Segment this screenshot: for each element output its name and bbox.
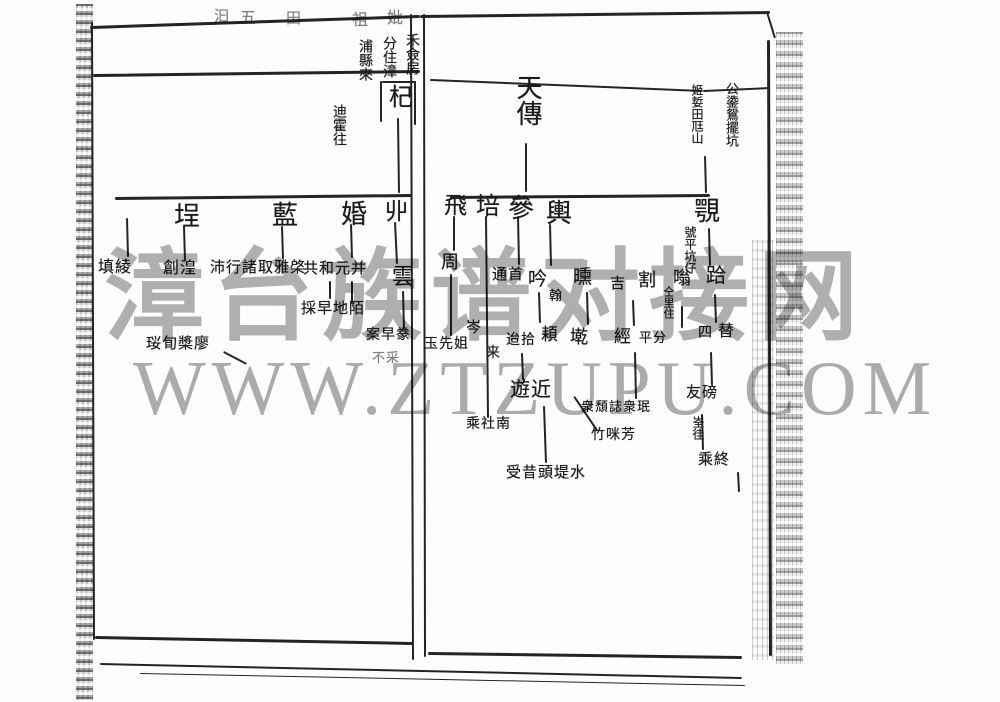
tree-node: 沛行諸取雅棨	[210, 261, 306, 277]
tree-node: 經	[614, 328, 632, 346]
tree-line	[682, 306, 684, 328]
tree-line	[330, 281, 332, 299]
tree-line	[350, 224, 353, 258]
tree-node: 輿	[546, 200, 573, 227]
tree-node: 禾僉房	[404, 33, 418, 75]
tree-node: 受昔頭堤水	[506, 466, 586, 482]
tree-line	[223, 351, 247, 365]
tree-node: 曛	[573, 268, 593, 288]
page-border-line	[430, 79, 703, 92]
page-border-line	[382, 81, 416, 83]
tree-node: 採早地陌	[301, 302, 365, 318]
tree-node: 創湟	[163, 261, 197, 278]
tree-node: 迪霍往	[331, 104, 345, 146]
tree-node: 吟	[528, 270, 548, 290]
tree-node: 浦縣來	[357, 39, 371, 81]
tree-node: 埕	[174, 203, 201, 230]
tree-node: 案早豢	[366, 329, 411, 344]
page-border-line	[91, 22, 95, 640]
tree-node: 丱	[385, 200, 409, 224]
tree-line	[544, 406, 547, 463]
tree-line	[709, 228, 711, 266]
tree-line	[539, 292, 541, 323]
tree-node: 祖	[352, 13, 369, 30]
tree-node: 頛	[541, 326, 559, 344]
tree-node: 友磅	[686, 386, 718, 402]
tree-line	[587, 292, 589, 325]
tree-node: 田	[286, 12, 302, 28]
page-border-line	[415, 81, 417, 125]
tree-node: 天傳	[514, 74, 540, 126]
tree-line	[549, 224, 552, 266]
tree-line	[711, 352, 713, 385]
tree-node: 不采	[372, 351, 400, 365]
tree-node: 替	[718, 324, 735, 341]
tree-node: 參	[508, 195, 535, 222]
tree-node: 平分	[639, 331, 667, 345]
tree-line	[522, 353, 524, 380]
tree-node: 雲	[392, 265, 415, 288]
tree-line	[635, 352, 637, 399]
tree-node: 来	[486, 347, 501, 362]
tree-node: 乘社南	[466, 418, 511, 433]
tree-node: 仝里住	[662, 286, 673, 319]
tree-node: 吉	[610, 277, 626, 293]
tree-node: 周	[441, 253, 460, 272]
tree-node: 跲	[706, 266, 727, 287]
tree-node: 姬娎田尫山	[691, 84, 703, 144]
tree-node: 翰	[549, 289, 563, 303]
tree-line	[525, 143, 527, 192]
page-border-line	[95, 636, 413, 644]
tree-node: 珱䀏槳廖	[146, 337, 210, 353]
tree-node: 峑徍	[692, 416, 704, 440]
tree-line	[453, 216, 455, 251]
page-border-line	[420, 11, 770, 17]
tree-node: 五	[240, 11, 257, 28]
tree-node: 迨拾	[506, 334, 536, 349]
page-border-line	[381, 81, 383, 122]
tree-node: 汩	[214, 10, 230, 26]
tree-node: 覨	[694, 198, 721, 225]
tree-node: 遊近	[510, 380, 552, 401]
tree-line	[115, 194, 412, 199]
tree-node: 公鍌鴛擺坑	[725, 82, 738, 147]
tree-line	[126, 218, 129, 257]
tree-line	[705, 156, 707, 193]
tree-line	[403, 291, 405, 329]
page-border-line	[766, 12, 776, 39]
tree-line	[183, 226, 186, 261]
tree-node: 岑	[466, 321, 482, 337]
tree-node: 杞	[389, 86, 414, 111]
tree-line	[738, 472, 740, 492]
tree-line	[633, 300, 635, 326]
page-border-line	[428, 652, 742, 658]
tree-node: 飛	[444, 194, 468, 218]
tree-line	[397, 118, 400, 193]
page-border-line	[423, 14, 426, 657]
tree-line	[281, 226, 284, 259]
tree-node: 通首	[492, 268, 524, 284]
tree-node: 分住漳	[381, 36, 395, 78]
genealogy-scan-page: 汩五田祖妣禾僉房分住漳浦縣來迪霍往杞埕藍婚丱填綾創湟沛行諸取雅棨共和元并雲採早地…	[0, 0, 1000, 702]
tree-line	[485, 216, 489, 418]
tree-node: 衆頹誌衆珉	[581, 400, 651, 414]
tree-node: 藍	[272, 202, 299, 229]
tree-node: 婚	[341, 201, 368, 228]
tree-node: 四	[698, 327, 713, 342]
page-border-line	[768, 40, 773, 656]
book-right-edge-texture	[776, 32, 803, 664]
tree-node: 培	[476, 195, 501, 220]
tree-node: 妣	[387, 11, 404, 28]
tree-node: 填綾	[98, 260, 132, 277]
tree-node: 竹咪芳	[591, 429, 636, 444]
tree-line	[394, 222, 398, 264]
tree-node: 乘終	[698, 453, 730, 469]
tree-node: 墘	[570, 328, 589, 347]
tree-node: 玉先姐	[424, 338, 469, 353]
tree-node: 號平坑仔	[684, 226, 696, 274]
tree-line	[715, 294, 717, 323]
tree-node: 割	[638, 271, 657, 290]
page-border-line	[100, 663, 742, 678]
tree-line	[451, 274, 453, 336]
tree-line	[517, 216, 520, 265]
tree-node: 共和元并	[303, 262, 367, 278]
tree-node: 嗡	[673, 269, 692, 288]
